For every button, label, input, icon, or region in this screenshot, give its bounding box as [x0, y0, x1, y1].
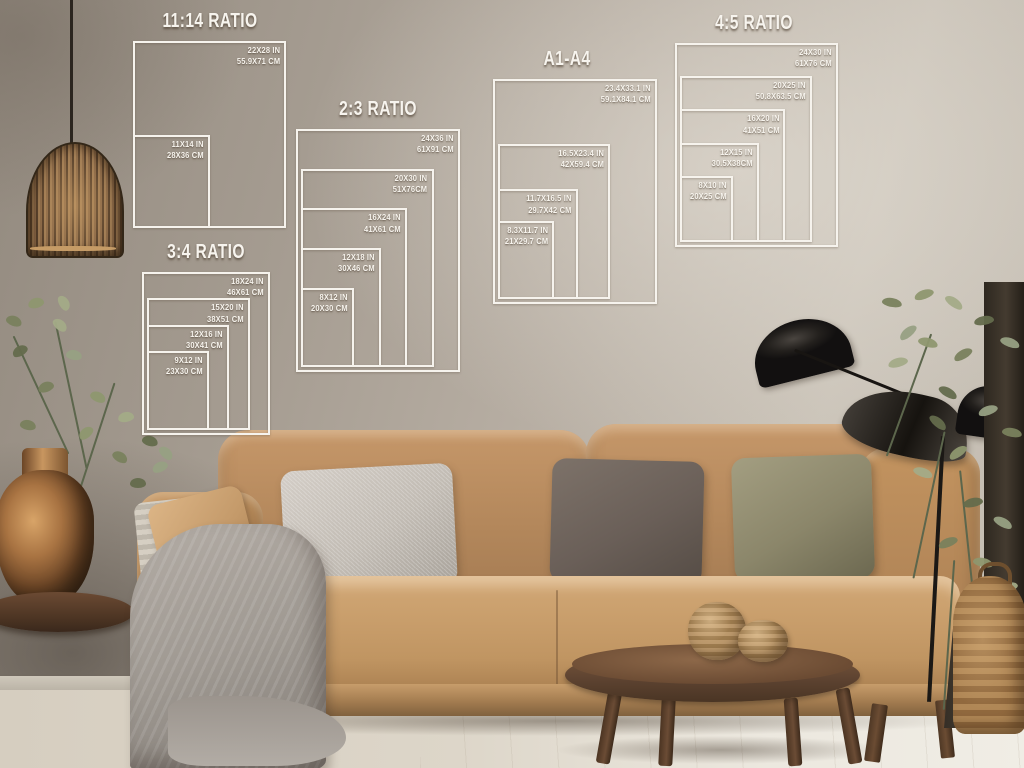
size-guide-title: 2:3 RATIO [339, 98, 417, 121]
size-label: 12X15 IN30.5X38CM [712, 147, 753, 169]
size-label: 16X24 IN41X61 CM [364, 212, 401, 234]
size-guide-title: A1-A4 [543, 48, 590, 71]
couch-seat-seam [556, 590, 558, 686]
size-label: 16X20 IN41X51 CM [743, 113, 780, 135]
pendant-lamp-cord [70, 0, 73, 146]
plant-leaf [130, 478, 146, 488]
size-guide-title: 4:5 RATIO [715, 12, 793, 35]
size-rect-8x12-in: 8X12 IN20X30 CM [301, 288, 354, 367]
size-label: 20X25 IN50.8X63.5 CM [756, 80, 806, 102]
size-label: 22X28 IN55.9X71 CM [237, 45, 280, 67]
size-label: 8X10 IN20X25 CM [690, 180, 727, 202]
dark-gray-pillow [549, 458, 704, 586]
size-guide-a1-a4: A1-A4 23.4X33.1 IN59.1X84.1 CM16.5X23.4 … [493, 79, 657, 304]
size-label: 16.5X23.4 IN42X59.4 CM [558, 148, 604, 170]
size-guide-11-14: 11:14 RATIO 22X28 IN55.9X71 CM11X14 IN28… [133, 41, 286, 228]
jute-basket [953, 576, 1024, 734]
size-label: 24X36 IN61X91 CM [417, 133, 454, 155]
size-label: 8.3X11.7 IN21X29.7 CM [505, 225, 548, 247]
rope-vase [738, 620, 788, 662]
olive-velvet-pillow [731, 454, 875, 583]
size-rect-11x14-in: 11X14 IN28X36 CM [133, 135, 210, 229]
size-label: 11X14 IN28X36 CM [167, 139, 204, 161]
pendant-lamp-rim [30, 246, 116, 251]
size-label: 15X20 IN38X51 CM [207, 302, 244, 324]
living-room-mockup: 11:14 RATIO 22X28 IN55.9X71 CM11X14 IN28… [0, 0, 1024, 768]
size-guide-title: 11:14 RATIO [162, 10, 257, 33]
size-label: 12X16 IN30X41 CM [186, 329, 223, 351]
brass-vase [0, 470, 94, 604]
size-label: 9X12 IN23X30 CM [166, 355, 203, 377]
size-rect-9x12-in: 9X12 IN23X30 CM [147, 351, 209, 430]
rope-vase [688, 602, 746, 660]
size-guide-4-5: 4:5 RATIO 24X30 IN61X76 CM20X25 IN50.8X6… [675, 43, 838, 247]
size-label: 8X12 IN20X30 CM [311, 292, 348, 314]
size-label: 12X18 IN30X46 CM [338, 252, 375, 274]
size-label: 24X30 IN61X76 CM [795, 47, 832, 69]
size-label: 23.4X33.1 IN59.1X84.1 CM [601, 83, 651, 105]
size-label: 18X24 IN46X61 CM [227, 276, 264, 298]
size-rect-8.3x11.7-in: 8.3X11.7 IN21X29.7 CM [498, 221, 554, 299]
size-label: 20X30 IN51X76CM [393, 173, 427, 195]
size-label: 11.7X16.5 IN29.7X42 CM [526, 193, 571, 215]
size-guide-2-3: 2:3 RATIO 24X36 IN61X91 CM20X30 IN51X76C… [296, 129, 460, 372]
size-guide-title: 3:4 RATIO [167, 241, 245, 264]
size-guide-3-4: 3:4 RATIO 18X24 IN46X61 CM15X20 IN38X51 … [142, 272, 270, 435]
size-rect-8x10-in: 8X10 IN20X25 CM [680, 176, 733, 242]
